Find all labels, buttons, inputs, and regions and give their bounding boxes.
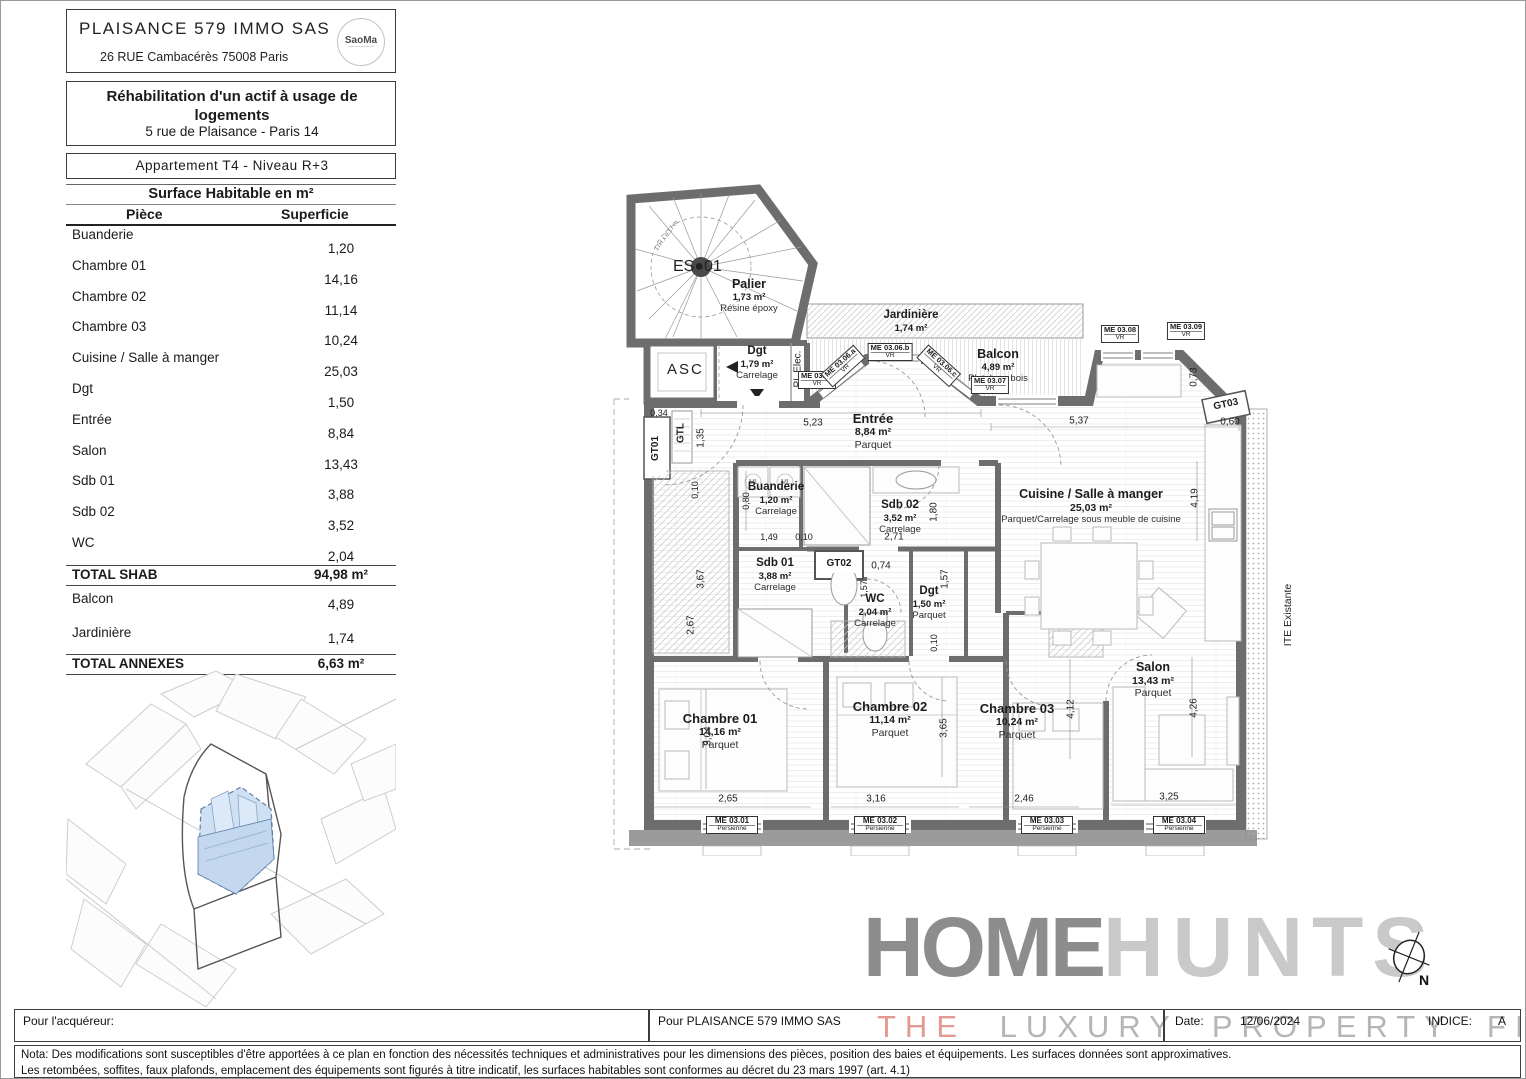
row-label: WC xyxy=(72,535,95,550)
table-row: Chambre 0211,14 xyxy=(66,288,396,319)
company-address: 26 RUE Cambacérès 75008 Paris xyxy=(100,50,288,64)
col-piece: Pièce xyxy=(126,206,163,222)
table-row: Cuisine / Salle à manger25,03 xyxy=(66,349,396,380)
row-value: 1,20 xyxy=(296,241,386,256)
total-shab-label: TOTAL SHAB xyxy=(72,567,158,582)
ite-label: ITE Existante xyxy=(1282,584,1294,646)
dimension: 0,10 xyxy=(929,634,939,652)
table-row: Sdb 023,52 xyxy=(66,503,396,534)
apartment-line: Appartement T4 - Niveau R+3 xyxy=(77,158,387,173)
row-value: 1,74 xyxy=(296,631,386,646)
north-compass-icon: N xyxy=(1379,929,1449,999)
date-label: Date: xyxy=(1175,1014,1204,1028)
row-value: 1,50 xyxy=(296,395,386,410)
room-label-chambre02: Chambre 0211,14 m²Parquet xyxy=(853,699,927,739)
row-label: Entrée xyxy=(72,412,112,427)
table-row: Entrée8,84 xyxy=(66,411,396,442)
room-label-chambre01: Chambre 0114,16 m²Parquet xyxy=(683,711,757,751)
logo-home: HOME xyxy=(863,900,1103,994)
homehunts-logo: HOMEHUNTS xyxy=(863,899,1437,996)
room-label-wc: WC2,04 m²Carrelage xyxy=(854,593,896,629)
window-label: ME 03.02Persienne xyxy=(854,816,906,834)
plan-sheet: PLAISANCE 579 IMMO SAS 26 RUE Cambacérès… xyxy=(0,0,1526,1079)
room-label-dgt-common: Dgt1,79 m²Carrelage xyxy=(736,345,778,381)
dimension: 2,46 xyxy=(1014,794,1033,805)
indice-value: A xyxy=(1498,1014,1506,1028)
window-label: ME 03.04Persienne xyxy=(1153,816,1205,834)
stair-label: ES●01 xyxy=(673,258,722,276)
gaine-gt02: GT02 xyxy=(819,555,859,573)
compass-n-label: N xyxy=(1419,972,1429,988)
date-box: Date: 12/06/2024 INDICE: A xyxy=(1164,1009,1521,1042)
room-label-sdb01: Sdb 013,88 m²Carrelage xyxy=(754,557,796,593)
row-value: 25,03 xyxy=(296,364,386,379)
project-address: 5 rue de Plaisance - Paris 14 xyxy=(77,124,387,139)
jardiniere-label: Jardinière1,74 m² xyxy=(884,309,939,334)
row-label: Cuisine / Salle à manger xyxy=(72,350,219,365)
row-value: 3,52 xyxy=(296,518,386,533)
dimension: 0,80 xyxy=(741,492,751,510)
floor-plan-drawing xyxy=(601,176,1327,856)
table-row: Balcon4,89 xyxy=(66,586,396,620)
saoma-logo: SaoMa xyxy=(337,18,385,66)
nota-line2: Les retombées, soffites, faux plafonds, … xyxy=(21,1064,1514,1079)
dimension: 0,60 xyxy=(1220,417,1239,428)
room-label-sdb02: Sdb 023,52 m²Carrelage xyxy=(879,499,921,535)
row-value: 3,88 xyxy=(296,487,386,502)
window-label: ME 03.09VR xyxy=(1167,322,1205,340)
row-value: 8,84 xyxy=(296,426,386,441)
total-shab-row: TOTAL SHAB 94,98 m² xyxy=(66,565,396,586)
dimension: 3,25 xyxy=(1159,792,1178,803)
room-label-salon: Salon13,43 m²Parquet xyxy=(1132,660,1174,700)
dimension: 2,67 xyxy=(686,615,697,634)
table-row: Chambre 0310,24 xyxy=(66,318,396,349)
dimension: 1,57 xyxy=(940,569,951,588)
dimension: 5,37 xyxy=(1069,416,1088,427)
saoma-logo-text: SaoMa xyxy=(345,35,377,46)
dimension: 1,35 xyxy=(696,428,707,447)
dimension: 3,65 xyxy=(939,718,950,737)
gtl-label: GTL xyxy=(676,423,687,443)
table-row: Salon13,43 xyxy=(66,442,396,473)
company-sign-box: Pour PLAISANCE 579 IMMO SAS xyxy=(649,1009,1164,1042)
total-shab-value: 94,98 m² xyxy=(291,567,391,582)
project-title-box: Réhabilitation d'un actif à usage de log… xyxy=(66,81,396,146)
dimension: 1,49 xyxy=(760,532,778,542)
room-label-dgt: Dgt1,50 m²Parquet xyxy=(912,585,945,621)
dimension: 0,10 xyxy=(690,481,700,499)
room-label-buanderie: Buanderie1,20 m²Carrelage xyxy=(748,481,804,517)
site-plan-3d xyxy=(66,669,396,1009)
col-superficie: Superficie xyxy=(281,206,349,222)
date-value: 12/06/2024 xyxy=(1240,1014,1300,1028)
surface-table-title: Surface Habitable en m² xyxy=(66,184,396,205)
row-label: Jardinière xyxy=(72,625,131,640)
room-label-palier: Palier1,73 m²Résine époxy xyxy=(720,277,778,314)
dimension: 1,80 xyxy=(929,502,940,521)
company-name: PLAISANCE 579 IMMO SAS xyxy=(79,19,330,39)
elevator-label: ASC xyxy=(667,361,704,378)
acquirer-box: Pour l'acquéreur: xyxy=(14,1009,649,1042)
row-label: Sdb 01 xyxy=(72,473,115,488)
dimension: 4,12 xyxy=(1066,699,1077,718)
row-value: 2,04 xyxy=(296,549,386,564)
row-value: 4,89 xyxy=(296,597,386,612)
row-label: Sdb 02 xyxy=(72,504,115,519)
dimension: 0,74 xyxy=(871,561,890,572)
nota-line1: Nota: Des modifications sont susceptible… xyxy=(21,1048,1514,1064)
apartment-box: Appartement T4 - Niveau R+3 xyxy=(66,153,396,179)
indice-label: INDICE: xyxy=(1428,1014,1472,1028)
row-label: Chambre 03 xyxy=(72,319,146,334)
company-header-box: PLAISANCE 579 IMMO SAS 26 RUE Cambacérès… xyxy=(66,9,396,73)
row-label: Balcon xyxy=(72,591,113,606)
dimension: 1,57 xyxy=(859,580,869,598)
row-value: 14,16 xyxy=(296,272,386,287)
project-title: Réhabilitation d'un actif à usage de log… xyxy=(77,88,387,126)
dimension: 3,16 xyxy=(866,794,885,805)
room-label-cuisine: Cuisine / Salle à manger25,03 m²Parquet/… xyxy=(1001,487,1181,525)
window-label: ME 03.01Persienne xyxy=(706,816,758,834)
table-row: Dgt1,50 xyxy=(66,380,396,411)
acquirer-label: Pour l'acquéreur: xyxy=(23,1014,114,1028)
room-label-chambre03: Chambre 0310,24 m²Parquet xyxy=(980,701,1054,741)
table-row: Sdb 013,88 xyxy=(66,472,396,503)
dimension: 0,73 xyxy=(1189,367,1200,386)
gaine-gt01: GT01 xyxy=(646,420,666,476)
company-sign-label: Pour PLAISANCE 579 IMMO SAS xyxy=(658,1014,841,1028)
dimension: 3,67 xyxy=(696,569,707,588)
row-label: Buanderie xyxy=(72,227,134,242)
dimension: 4,19 xyxy=(1190,488,1201,507)
dimension: 0,34 xyxy=(650,408,668,418)
table-row: Buanderie1,20 xyxy=(66,226,396,257)
nota-box: Nota: Des modifications sont susceptible… xyxy=(14,1045,1521,1078)
row-label: Dgt xyxy=(72,381,93,396)
window-label: ME 03.08VR xyxy=(1101,325,1139,343)
window-label: ME 03.03Persienne xyxy=(1021,816,1073,834)
window-label: ME 03.06.bVR xyxy=(868,343,913,361)
dimension: 2,71 xyxy=(884,532,903,543)
window-label: ME 03.07VR xyxy=(971,376,1009,394)
room-label-entree: Entrée8,84 m²Parquet xyxy=(853,411,893,451)
dimension: 3,04 xyxy=(703,726,714,745)
dimension: 0,10 xyxy=(795,532,813,542)
row-value: 13,43 xyxy=(296,457,386,472)
dimension: 2,65 xyxy=(718,794,737,805)
row-label: Chambre 01 xyxy=(72,258,146,273)
surface-table-header: Pièce Superficie xyxy=(66,205,396,226)
surface-table: Surface Habitable en m² Pièce Superficie… xyxy=(66,184,396,675)
row-value: 10,24 xyxy=(296,333,386,348)
table-row: WC2,04 xyxy=(66,534,396,565)
row-label: Salon xyxy=(72,443,107,458)
row-value: 11,14 xyxy=(296,303,386,318)
row-label: Chambre 02 xyxy=(72,289,146,304)
table-row: Jardinière1,74 xyxy=(66,620,396,654)
dimension: 5,23 xyxy=(803,418,822,429)
table-row: Chambre 0114,16 xyxy=(66,257,396,288)
dimension: 4,26 xyxy=(1189,698,1200,717)
